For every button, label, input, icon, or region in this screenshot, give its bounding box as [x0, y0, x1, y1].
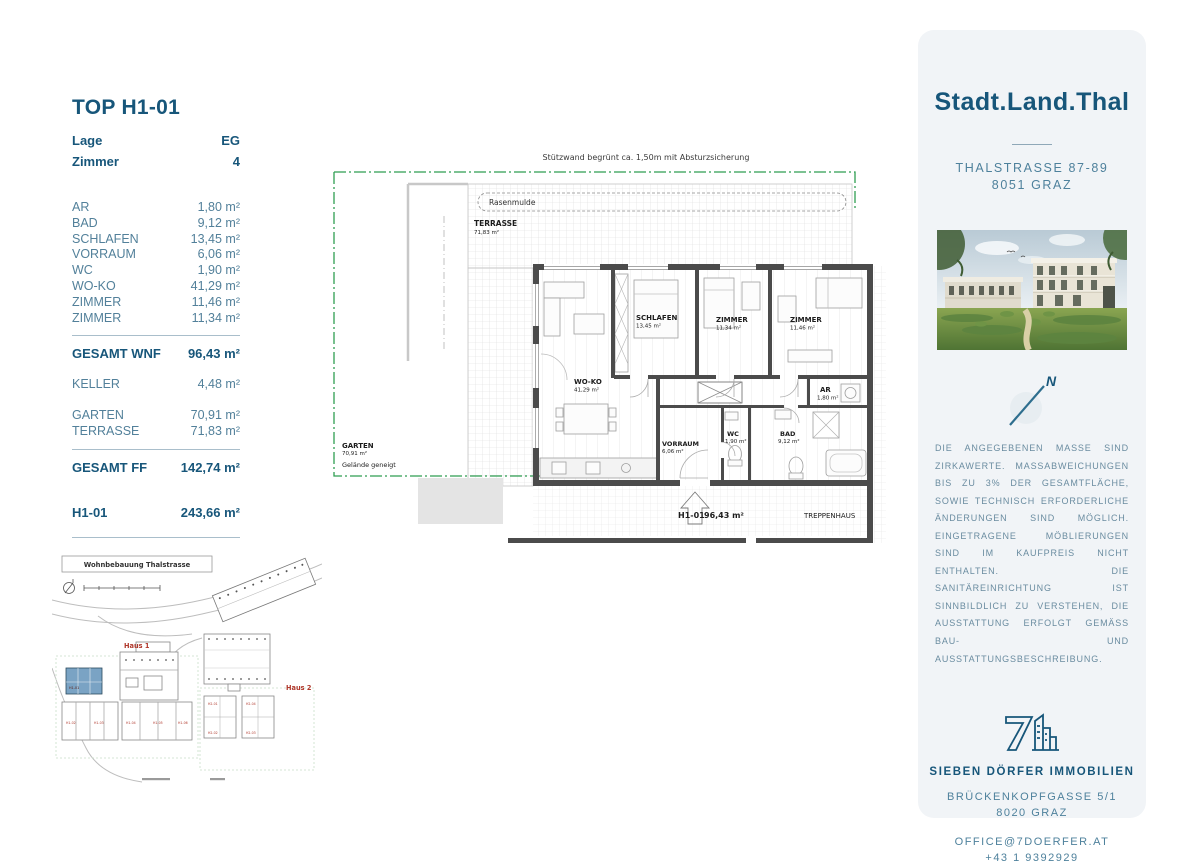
divider	[72, 537, 240, 538]
gesamt-wnf-row: GESAMT WNF96,43 m²	[72, 345, 240, 362]
haus1-label: Haus 1	[124, 642, 150, 650]
treppenhaus-label: TREPPENHAUS	[803, 512, 856, 520]
siteplan-title: Wohnbebauung Thalstrasse	[84, 561, 191, 569]
room-row: BAD9,12 m²	[72, 216, 240, 232]
gesamt-ff-row: GESAMT FF142,74 m²	[72, 459, 240, 476]
unit-title: TOP H1-01	[72, 96, 240, 120]
svg-text:BAD: BAD	[780, 430, 796, 438]
stuetzwand-note: Stützwand begrünt ca. 1,50m mit Absturzs…	[543, 153, 750, 162]
company-city: 8020 GRAZ	[918, 805, 1146, 821]
svg-text:6,06 m²: 6,06 m²	[662, 448, 684, 455]
svg-text:WC: WC	[727, 430, 739, 438]
garten-label: GARTEN 70,91 m² Gelände geneigt	[342, 442, 396, 469]
svg-text:1,90 m²: 1,90 m²	[725, 438, 747, 445]
terrasse-row: TERRASSE71,83 m²	[72, 424, 240, 440]
room-row: ZIMMER11,34 m²	[72, 311, 240, 327]
svg-text:H1-04: H1-04	[126, 721, 136, 725]
company-name: SIEBEN DÖRFER IMMOBILIEN	[918, 766, 1146, 778]
photo-building-right	[1031, 258, 1117, 308]
attr-label: Zimmer	[72, 151, 119, 172]
svg-text:Gelände geneigt: Gelände geneigt	[342, 461, 396, 469]
project-city: 8051 GRAZ	[918, 177, 1146, 194]
ground-step	[418, 478, 503, 524]
svg-text:13,45 m²: 13,45 m²	[636, 323, 661, 330]
company-phone: +43 1 9392929	[918, 850, 1146, 866]
svg-text:11,46 m²: 11,46 m²	[790, 325, 815, 332]
photo-path	[1025, 310, 1029, 350]
siteplan-footnotes	[142, 778, 225, 780]
room-row: VORRAUM6,06 m²	[72, 247, 240, 263]
wo-ko-label: WO-KO 41,29 m²	[574, 378, 602, 394]
project-photo	[937, 230, 1127, 350]
attr-value: 4	[233, 151, 240, 172]
seven-doerfer-logo-icon	[999, 704, 1065, 756]
brand-divider	[1012, 144, 1052, 145]
svg-text:H1-02: H1-02	[66, 721, 76, 725]
svg-text:H2-03: H2-03	[246, 731, 256, 735]
svg-text:96,43 m²: 96,43 m²	[704, 511, 744, 520]
svg-text:TERRASSE: TERRASSE	[474, 219, 517, 228]
company-address: BRÜCKENKOPFGASSE 5/1 8020 GRAZ	[918, 789, 1146, 821]
room-row: WO-KO41,29 m²	[72, 279, 240, 295]
company-logo	[918, 704, 1146, 756]
svg-text:1,80 m²: 1,80 m²	[817, 395, 839, 402]
compass: N	[918, 368, 1146, 430]
svg-text:41,29 m²: 41,29 m²	[574, 387, 599, 394]
siteplan-compass-icon	[64, 579, 75, 594]
highlighted-unit: H1-01	[66, 668, 102, 694]
company-street: BRÜCKENKOPFGASSE 5/1	[918, 789, 1146, 805]
svg-text:H2-04: H2-04	[246, 702, 256, 706]
site-plan: Wohnbebauung Thalstrasse	[52, 550, 322, 795]
unit-area-label: H1-01 96,43 m²	[678, 511, 744, 520]
svg-text:H1-03: H1-03	[94, 721, 104, 725]
svg-text:H2-01: H2-01	[208, 702, 218, 706]
divider	[72, 335, 240, 336]
siteplan-title-box: Wohnbebauung Thalstrasse	[62, 556, 212, 572]
haus2-buildings	[204, 634, 274, 738]
photo-building-left	[943, 277, 1023, 308]
compass-north-label: N	[1046, 373, 1057, 389]
unit-info-panel: TOP H1-01 Lage EG Zimmer 4 AR1,80 m² BAD…	[72, 96, 240, 547]
svg-text:11,34 m²: 11,34 m²	[716, 325, 741, 332]
svg-text:H1-01: H1-01	[678, 511, 705, 520]
svg-text:VORRAUM: VORRAUM	[662, 440, 699, 448]
disclaimer-text: DIE ANGEGEBENEN MASSE SIND ZIRKAWERTE. M…	[935, 440, 1129, 668]
divider	[72, 449, 240, 450]
floor-plan: Stützwand begrünt ca. 1,50m mit Absturzs…	[328, 146, 888, 558]
svg-text:71,83 m²: 71,83 m²	[474, 229, 499, 236]
attr-label: Lage	[72, 130, 102, 151]
rasenmulde-label: Rasenmulde	[489, 198, 536, 207]
highlight-unit-label: H1-01	[69, 686, 79, 690]
room-row: AR1,80 m²	[72, 200, 240, 216]
brand-sidebar: Stadt.Land.Thal THALSTRASSE 87-89 8051 G…	[918, 30, 1146, 818]
unit-total-row: H1-01243,66 m²	[72, 504, 240, 521]
keller-row: KELLER4,48 m²	[72, 377, 240, 393]
stairwell-walls	[508, 538, 873, 543]
attr-value: EG	[221, 130, 240, 151]
svg-text:ZIMMER: ZIMMER	[716, 316, 748, 324]
svg-text:H1-06: H1-06	[178, 721, 188, 725]
svg-text:SCHLAFEN: SCHLAFEN	[636, 314, 677, 322]
project-street: THALSTRASSE 87-89	[918, 160, 1146, 177]
room-row: SCHLAFEN13,45 m²	[72, 232, 240, 248]
garten-row: GARTEN70,91 m²	[72, 408, 240, 424]
svg-text:70,91 m²: 70,91 m²	[342, 450, 367, 457]
haus2-label: Haus 2	[286, 684, 312, 692]
svg-text:AR: AR	[820, 386, 831, 394]
svg-text:ZIMMER: ZIMMER	[790, 316, 822, 324]
room-row: WC1,90 m²	[72, 263, 240, 279]
attr-row-zimmer: Zimmer 4	[72, 151, 240, 172]
svg-text:9,12 m²: 9,12 m²	[778, 438, 800, 445]
svg-text:WO-KO: WO-KO	[574, 378, 602, 386]
brand-title: Stadt.Land.Thal	[918, 88, 1146, 117]
svg-text:H1-05: H1-05	[153, 721, 163, 725]
scale-bar	[84, 585, 160, 591]
carport	[212, 558, 315, 621]
svg-text:H2-02: H2-02	[208, 731, 218, 735]
project-address: THALSTRASSE 87-89 8051 GRAZ	[918, 160, 1146, 194]
svg-text:GARTEN: GARTEN	[342, 442, 374, 450]
room-row: ZIMMER11,46 m²	[72, 295, 240, 311]
company-contact: OFFICE@7DOERFER.AT +43 1 9392929	[918, 834, 1146, 866]
attr-row-lage: Lage EG	[72, 130, 240, 151]
